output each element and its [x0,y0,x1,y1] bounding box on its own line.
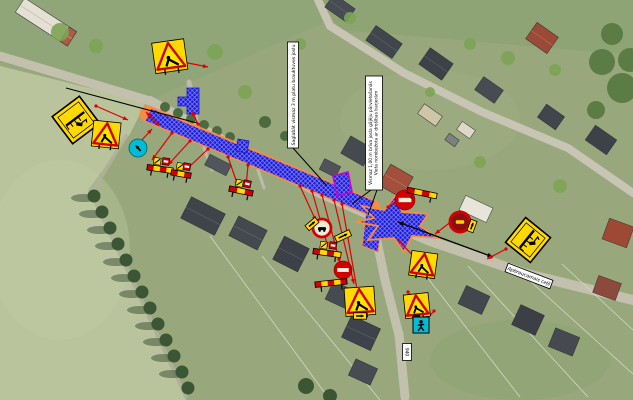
sign-no-entry-south [334,261,352,279]
sign-mandatory-left [129,139,147,157]
sign-roadworks-left [91,120,121,151]
svg-text:Saglabāt vismaz 3 m platu brau: Saglabāt vismaz 3 m platu brauktuves jos… [291,45,297,146]
sign-plate-4 [354,313,367,319]
sign-prohibit-east [450,212,470,232]
note-pedestrian: Vismaz 1,00 m brīva josla gājēju pārviet… [366,76,383,190]
work-zone-patch [236,139,249,153]
svg-text:940: 940 [403,348,409,357]
svg-text:Vismaz 1,00 m brīva josla gājē: Vismaz 1,00 m brīva josla gājēju pārviet… [367,80,374,184]
aerial-basemap [0,0,633,400]
plan-canvas: Saglabāt vismaz 3 m platu brauktuves jos… [0,0,633,400]
code-tag: 940 [403,344,412,361]
svg-text:Vieta norobežota ar drošības b: Vieta norobežota ar drošības barjerām [373,91,380,176]
traffic-management-plan: Saglabāt vismaz 3 m platu brauktuves jos… [0,0,633,400]
sign-ped-crossing [413,315,429,334]
trench-crossing [333,172,352,196]
note-lane: Saglabāt vismaz 3 m platu brauktuves jos… [288,42,299,148]
